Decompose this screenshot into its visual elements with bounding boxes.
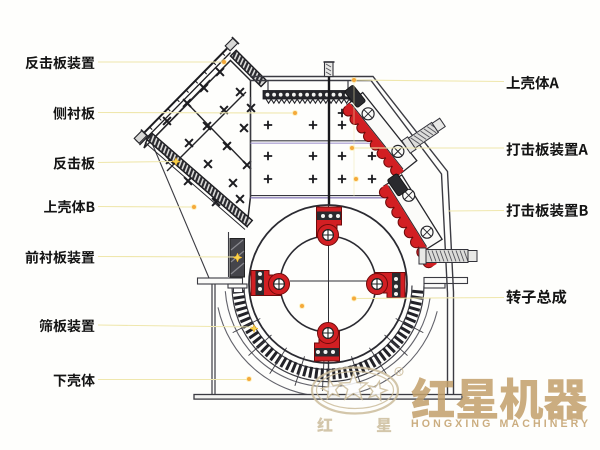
svg-text:HONGXING MACHINERY: HONGXING MACHINERY bbox=[411, 418, 591, 430]
svg-text:R: R bbox=[397, 371, 402, 377]
